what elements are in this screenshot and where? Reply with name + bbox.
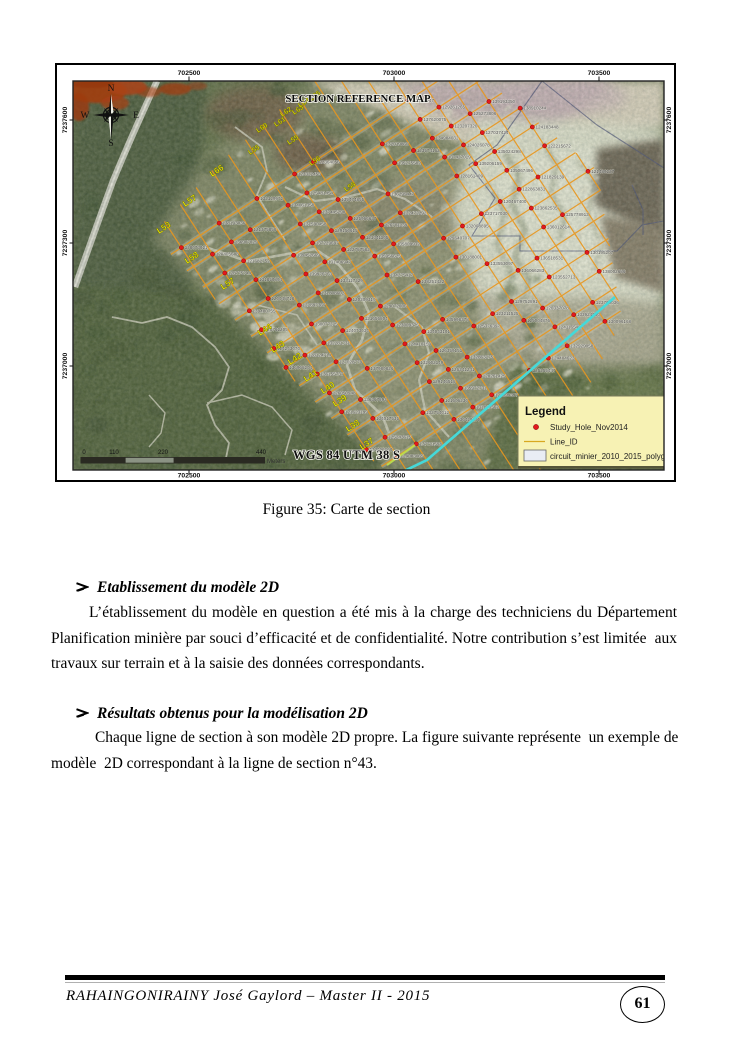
svg-text:126341241: 126341241 (452, 367, 475, 372)
svg-text:121656804: 121656804 (365, 316, 388, 321)
svg-text:123574162: 123574162 (417, 148, 440, 153)
svg-text:120048718: 120048718 (271, 296, 294, 301)
svg-text:220: 220 (158, 450, 169, 456)
svg-text:122215672: 122215672 (548, 143, 571, 148)
svg-text:132863175: 132863175 (470, 355, 493, 360)
svg-text:7237600: 7237600 (62, 107, 69, 134)
svg-text:136518531: 136518531 (540, 256, 563, 261)
svg-text:121829139: 121829139 (541, 175, 564, 180)
svg-text:110: 110 (109, 450, 119, 456)
svg-text:702500: 702500 (178, 473, 201, 480)
svg-text:131406947: 131406947 (328, 259, 351, 264)
svg-text:138193036: 138193036 (222, 221, 245, 226)
svg-text:138002686: 138002686 (602, 269, 625, 274)
svg-text:134984032: 134984032 (436, 136, 459, 141)
svg-text:121341105: 121341105 (366, 235, 389, 240)
svg-text:134043101: 134043101 (427, 329, 450, 334)
svg-text:129146518: 129146518 (433, 379, 456, 384)
svg-text:130195207: 130195207 (590, 250, 613, 255)
svg-text:129640707: 129640707 (447, 236, 470, 241)
svg-text:138251422: 138251422 (421, 279, 444, 284)
svg-text:S: S (108, 139, 113, 149)
svg-text:127028779: 127028779 (339, 359, 362, 364)
svg-text:135956625: 135956625 (378, 254, 401, 259)
svg-text:131850894: 131850894 (259, 277, 282, 282)
svg-text:139480755: 139480755 (253, 308, 276, 313)
svg-text:122472292: 122472292 (403, 210, 426, 215)
svg-text:132754012: 132754012 (426, 410, 449, 415)
svg-text:702500: 702500 (178, 70, 201, 77)
svg-text:N: N (108, 84, 115, 94)
svg-text:132129972: 132129972 (260, 196, 283, 201)
svg-text:136367893: 136367893 (364, 397, 387, 402)
svg-text:125273806: 125273806 (473, 111, 496, 116)
svg-text:121489227: 121489227 (591, 169, 614, 174)
svg-text:137711598: 137711598 (419, 441, 442, 446)
svg-text:135474855: 135474855 (341, 197, 364, 202)
svg-text:135275582: 135275582 (398, 160, 421, 165)
svg-text:129752891: 129752891 (515, 299, 538, 304)
svg-text:E: E (133, 111, 139, 121)
svg-text:135998378: 135998378 (446, 317, 469, 322)
svg-text:132281731: 132281731 (327, 340, 350, 345)
svg-text:133117329: 133117329 (340, 278, 363, 283)
svg-text:130096168: 130096168 (608, 319, 631, 324)
svg-text:136968204: 136968204 (289, 365, 312, 370)
svg-text:135067496: 135067496 (510, 168, 533, 173)
svg-text:136012614: 136012614 (547, 225, 570, 230)
svg-text:123552713: 123552713 (552, 275, 575, 280)
svg-text:122863831: 122863831 (522, 187, 545, 192)
svg-text:123717030: 123717030 (485, 211, 508, 216)
svg-text:134061358: 134061358 (291, 203, 314, 208)
svg-text:121375858: 121375858 (253, 227, 276, 232)
svg-text:134275417: 134275417 (390, 273, 413, 278)
svg-text:125243615: 125243615 (388, 435, 411, 440)
svg-text:129261265: 129261265 (442, 105, 465, 110)
svg-text:134017535: 134017535 (376, 416, 399, 421)
svg-text:Legend: Legend (525, 406, 566, 418)
svg-text:132929058: 132929058 (570, 343, 593, 348)
svg-text:123862535: 123862535 (535, 206, 558, 211)
svg-text:W: W (81, 111, 90, 121)
svg-text:136907029: 136907029 (235, 239, 258, 244)
svg-text:120405608: 120405608 (216, 252, 239, 257)
svg-text:137229697: 137229697 (316, 240, 339, 245)
svg-text:120337078: 120337078 (546, 306, 569, 311)
svg-text:136155737: 136155737 (320, 372, 343, 377)
svg-text:124026078: 124026078 (467, 142, 490, 147)
svg-text:125255447: 125255447 (533, 368, 556, 373)
svg-text:440: 440 (256, 450, 267, 456)
svg-text:Study_Hole_Nov2014: Study_Hole_Nov2014 (550, 423, 628, 432)
svg-text:124410159: 124410159 (408, 341, 431, 346)
svg-text:122787582: 122787582 (347, 247, 370, 252)
svg-text:123322453: 123322453 (298, 172, 321, 177)
svg-text:137620075: 137620075 (423, 117, 446, 122)
svg-text:circuit_minier_2010_2015_polyg: circuit_minier_2010_2015_polyg (550, 452, 665, 461)
svg-text:703500: 703500 (588, 473, 611, 480)
svg-text:Line_ID: Line_ID (550, 438, 578, 447)
svg-text:123207320: 123207320 (454, 124, 477, 129)
svg-text:120467400: 120467400 (503, 199, 526, 204)
svg-text:139193350: 139193350 (492, 99, 515, 104)
svg-text:137445290: 137445290 (322, 209, 345, 214)
svg-text:138910244: 138910244 (523, 106, 546, 111)
svg-text:135809932: 135809932 (397, 241, 420, 246)
svg-text:703000: 703000 (383, 70, 406, 77)
svg-text:136299447: 136299447 (391, 191, 414, 196)
svg-text:7237000: 7237000 (62, 353, 69, 380)
svg-text:125481454: 125481454 (310, 190, 333, 195)
svg-text:120309319: 120309319 (353, 297, 376, 302)
svg-text:703000: 703000 (383, 473, 406, 480)
svg-text:131590458: 131590458 (303, 222, 326, 227)
svg-text:125004876: 125004876 (527, 318, 550, 323)
svg-text:126701139: 126701139 (385, 223, 408, 228)
svg-text:121897367: 121897367 (303, 303, 326, 308)
svg-text:121623199: 121623199 (345, 409, 368, 414)
svg-text:121682752: 121682752 (247, 258, 270, 263)
svg-text:128161409: 128161409 (460, 174, 483, 179)
svg-text:136066283: 136066283 (521, 268, 544, 273)
svg-text:703500: 703500 (588, 70, 611, 77)
svg-text:120261425: 120261425 (483, 374, 506, 379)
svg-text:SECTION REFERENCE MAP: SECTION REFERENCE MAP (285, 93, 431, 105)
svg-text:123211525: 123211525 (496, 311, 519, 316)
svg-text:125966637: 125966637 (353, 216, 376, 221)
svg-text:121606230: 121606230 (445, 398, 468, 403)
svg-text:124183448: 124183448 (536, 125, 559, 130)
svg-text:125778913: 125778913 (566, 212, 589, 217)
svg-text:132602149: 132602149 (420, 360, 443, 365)
svg-text:127037424: 127037424 (486, 130, 509, 135)
svg-text:WGS 84 UTM 38 S: WGS 84 UTM 38 S (293, 448, 400, 462)
svg-text:124073034: 124073034 (346, 328, 369, 333)
svg-text:130188001: 130188001 (459, 255, 482, 260)
svg-text:139206159: 139206159 (479, 161, 502, 166)
svg-text:135972731: 135972731 (464, 386, 487, 391)
svg-text:128775744: 128775744 (228, 271, 251, 276)
svg-text:129072006: 129072006 (384, 304, 407, 309)
svg-text:132019860: 132019860 (386, 141, 409, 146)
svg-text:135024298: 135024298 (498, 149, 521, 154)
svg-text:129150615: 129150615 (335, 228, 358, 233)
svg-text:131808602: 131808602 (321, 290, 344, 295)
svg-text:124404623: 124404623 (552, 356, 575, 361)
svg-text:137980826: 137980826 (370, 366, 393, 371)
svg-text:123009375: 123009375 (396, 323, 419, 328)
svg-text:125376397: 125376397 (477, 324, 500, 329)
svg-text:Meters: Meters (267, 459, 285, 465)
svg-text:137427019: 137427019 (448, 155, 471, 160)
svg-text:132008895: 132008895 (466, 224, 489, 229)
svg-text:133553097: 133553097 (490, 261, 513, 266)
svg-text:139452669: 139452669 (297, 253, 320, 258)
svg-text:138073021: 138073021 (185, 245, 208, 250)
svg-text:130077215: 130077215 (315, 322, 338, 327)
svg-text:139976763: 139976763 (309, 272, 332, 277)
svg-text:128124714: 128124714 (308, 353, 331, 358)
svg-text:126359151: 126359151 (439, 348, 462, 353)
svg-text:7237300: 7237300 (62, 230, 69, 257)
svg-text:124083065: 124083065 (401, 454, 424, 459)
